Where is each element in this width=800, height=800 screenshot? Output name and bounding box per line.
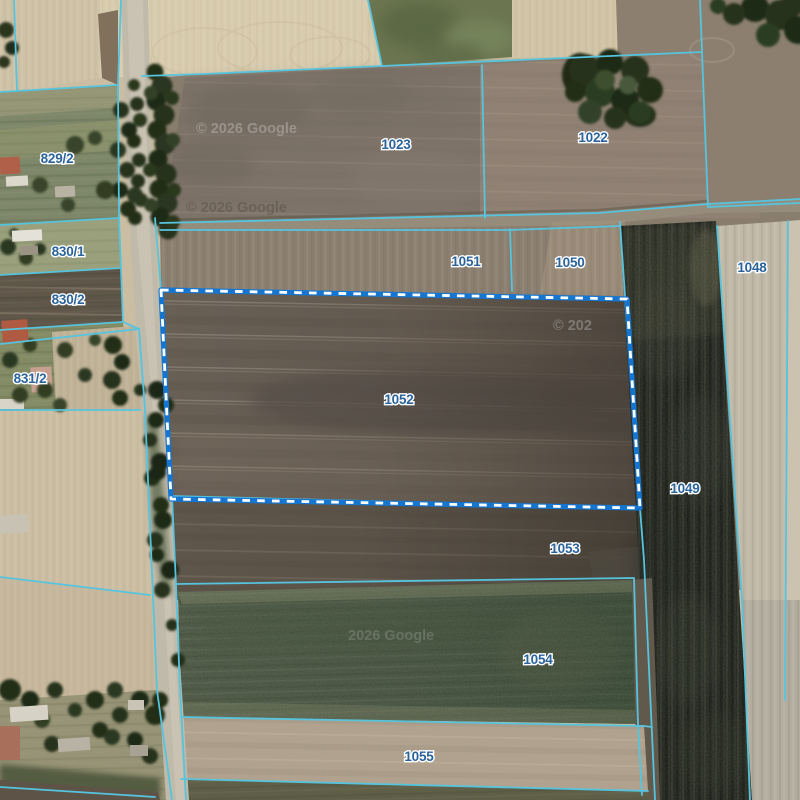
svg-text:1054: 1054: [523, 652, 553, 667]
svg-text:1050: 1050: [555, 255, 584, 270]
svg-text:© 202: © 202: [553, 318, 592, 334]
svg-text:1053: 1053: [550, 541, 580, 556]
svg-text:1052: 1052: [384, 392, 413, 407]
svg-text:1022: 1022: [578, 130, 607, 145]
svg-text:1051: 1051: [451, 254, 481, 269]
svg-text:1055: 1055: [404, 749, 434, 764]
svg-text:1049: 1049: [670, 481, 699, 496]
svg-text:1048: 1048: [737, 260, 767, 275]
svg-text:830/1: 830/1: [52, 244, 85, 259]
svg-text:© 2026 Google: © 2026 Google: [186, 200, 287, 216]
svg-text:829/2: 829/2: [41, 151, 74, 166]
svg-text:831/2: 831/2: [14, 371, 47, 386]
svg-text:© 2026 Google: © 2026 Google: [196, 121, 297, 137]
svg-text:2026 Google: 2026 Google: [348, 628, 434, 644]
svg-text:830/2: 830/2: [52, 292, 85, 307]
svg-text:1023: 1023: [381, 137, 411, 152]
